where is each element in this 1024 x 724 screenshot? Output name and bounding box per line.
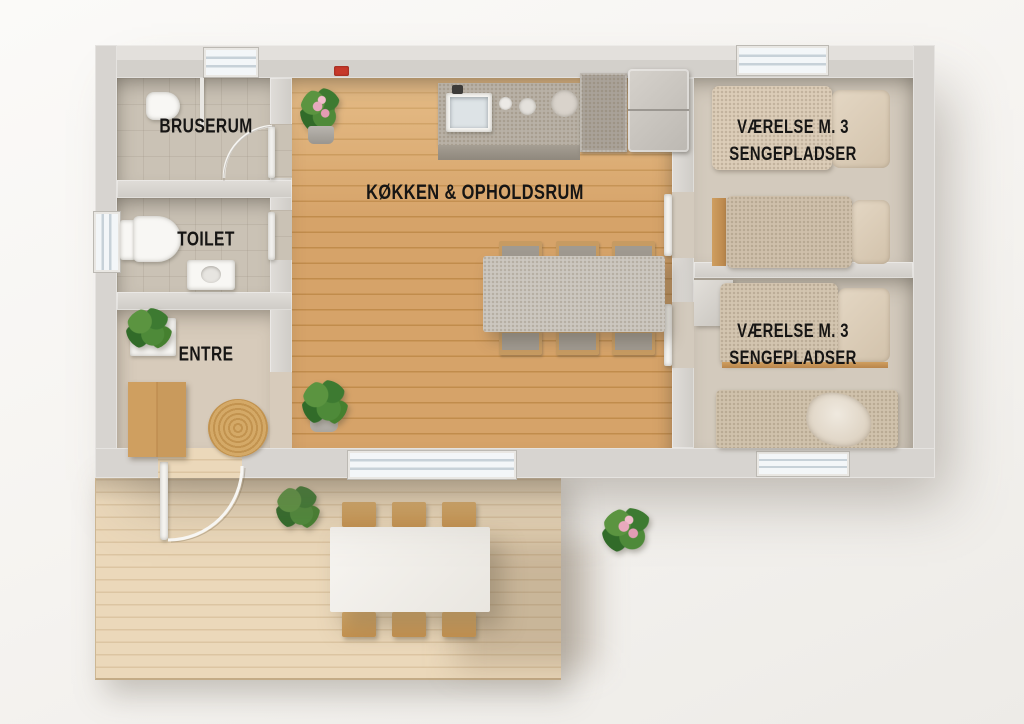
window-bedroom-bottom <box>757 452 849 476</box>
sliding-door-living <box>348 451 516 479</box>
label-kitchen-living: KØKKEN & OPHOLDSRUM <box>366 181 584 205</box>
label-toilet: TOILET <box>177 229 235 252</box>
outside-flower-bush <box>602 508 654 554</box>
front-door-leaf <box>160 462 168 540</box>
bedroom-top-door-leaf <box>664 194 672 256</box>
window-bedroom-top <box>737 46 828 75</box>
fridge <box>628 69 689 152</box>
bedroom-top-bed2-headboard <box>712 198 726 266</box>
entre-round-rug <box>208 399 268 457</box>
dining-table <box>483 256 665 332</box>
label-bedroom-bottom: VÆRELSE M. 3 SENGEPLADSER <box>729 318 856 372</box>
bedroom-top-bed2-pillow <box>852 200 890 264</box>
plate-small <box>499 97 512 110</box>
entre-cabinet <box>128 382 186 457</box>
wall-right <box>913 45 935 478</box>
house: BRUSERUM TOILET ENTRE KØKKEN & OPHOLDSRU… <box>0 0 1024 724</box>
bedroom-bottom-door-opening <box>672 302 694 368</box>
toilet-bowl <box>133 216 181 262</box>
bruserum-door-leaf <box>268 126 275 178</box>
window-bruserum-top <box>204 48 258 77</box>
front-door-arc-shadow <box>171 468 245 542</box>
dining-chair <box>556 330 599 355</box>
bedroom-bottom-door-leaf <box>664 304 672 366</box>
entre-plant <box>126 308 172 350</box>
window-toilet-left <box>94 212 120 272</box>
kitchen-sink-basin <box>450 97 488 128</box>
label-bedroom-top-line2: SENGEPLADSER <box>729 141 856 168</box>
smoke-detector <box>334 66 349 76</box>
wall-toilet-entre <box>117 292 292 310</box>
plate-medium <box>519 98 536 115</box>
living-plant <box>302 380 348 426</box>
bedroom-top-door-opening <box>672 192 694 258</box>
floor-plan: BRUSERUM TOILET ENTRE KØKKEN & OPHOLDSRU… <box>0 0 1024 724</box>
dining-chair <box>499 330 542 355</box>
dining-chair <box>612 330 655 355</box>
label-bedroom-top: VÆRELSE M. 3 SENGEPLADSER <box>729 114 856 168</box>
fridge-seam <box>628 109 689 111</box>
kitchen-flower-pot <box>308 126 334 144</box>
bathroom-sink <box>187 260 235 290</box>
kitchen-counter-front <box>438 145 580 160</box>
label-entre: ENTRE <box>179 344 234 367</box>
label-bedroom-bottom-line2: SENGEPLADSER <box>729 345 856 372</box>
entre-passage-opening <box>270 372 292 448</box>
label-bedroom-bottom-line1: VÆRELSE M. 3 <box>729 318 856 345</box>
kitchen-faucet <box>452 85 463 94</box>
label-bedroom-top-line1: VÆRELSE M. 3 <box>729 114 856 141</box>
plate-large <box>551 90 578 117</box>
toilet-door-leaf <box>268 212 275 260</box>
cooktop-unit <box>580 73 627 152</box>
sink-bowl <box>201 266 221 283</box>
wall-bruserum-toilet <box>117 180 292 198</box>
label-bruserum: BRUSERUM <box>159 116 252 139</box>
bedroom-top-bed2-mattress <box>726 196 852 268</box>
kitchen-sink <box>446 93 492 132</box>
